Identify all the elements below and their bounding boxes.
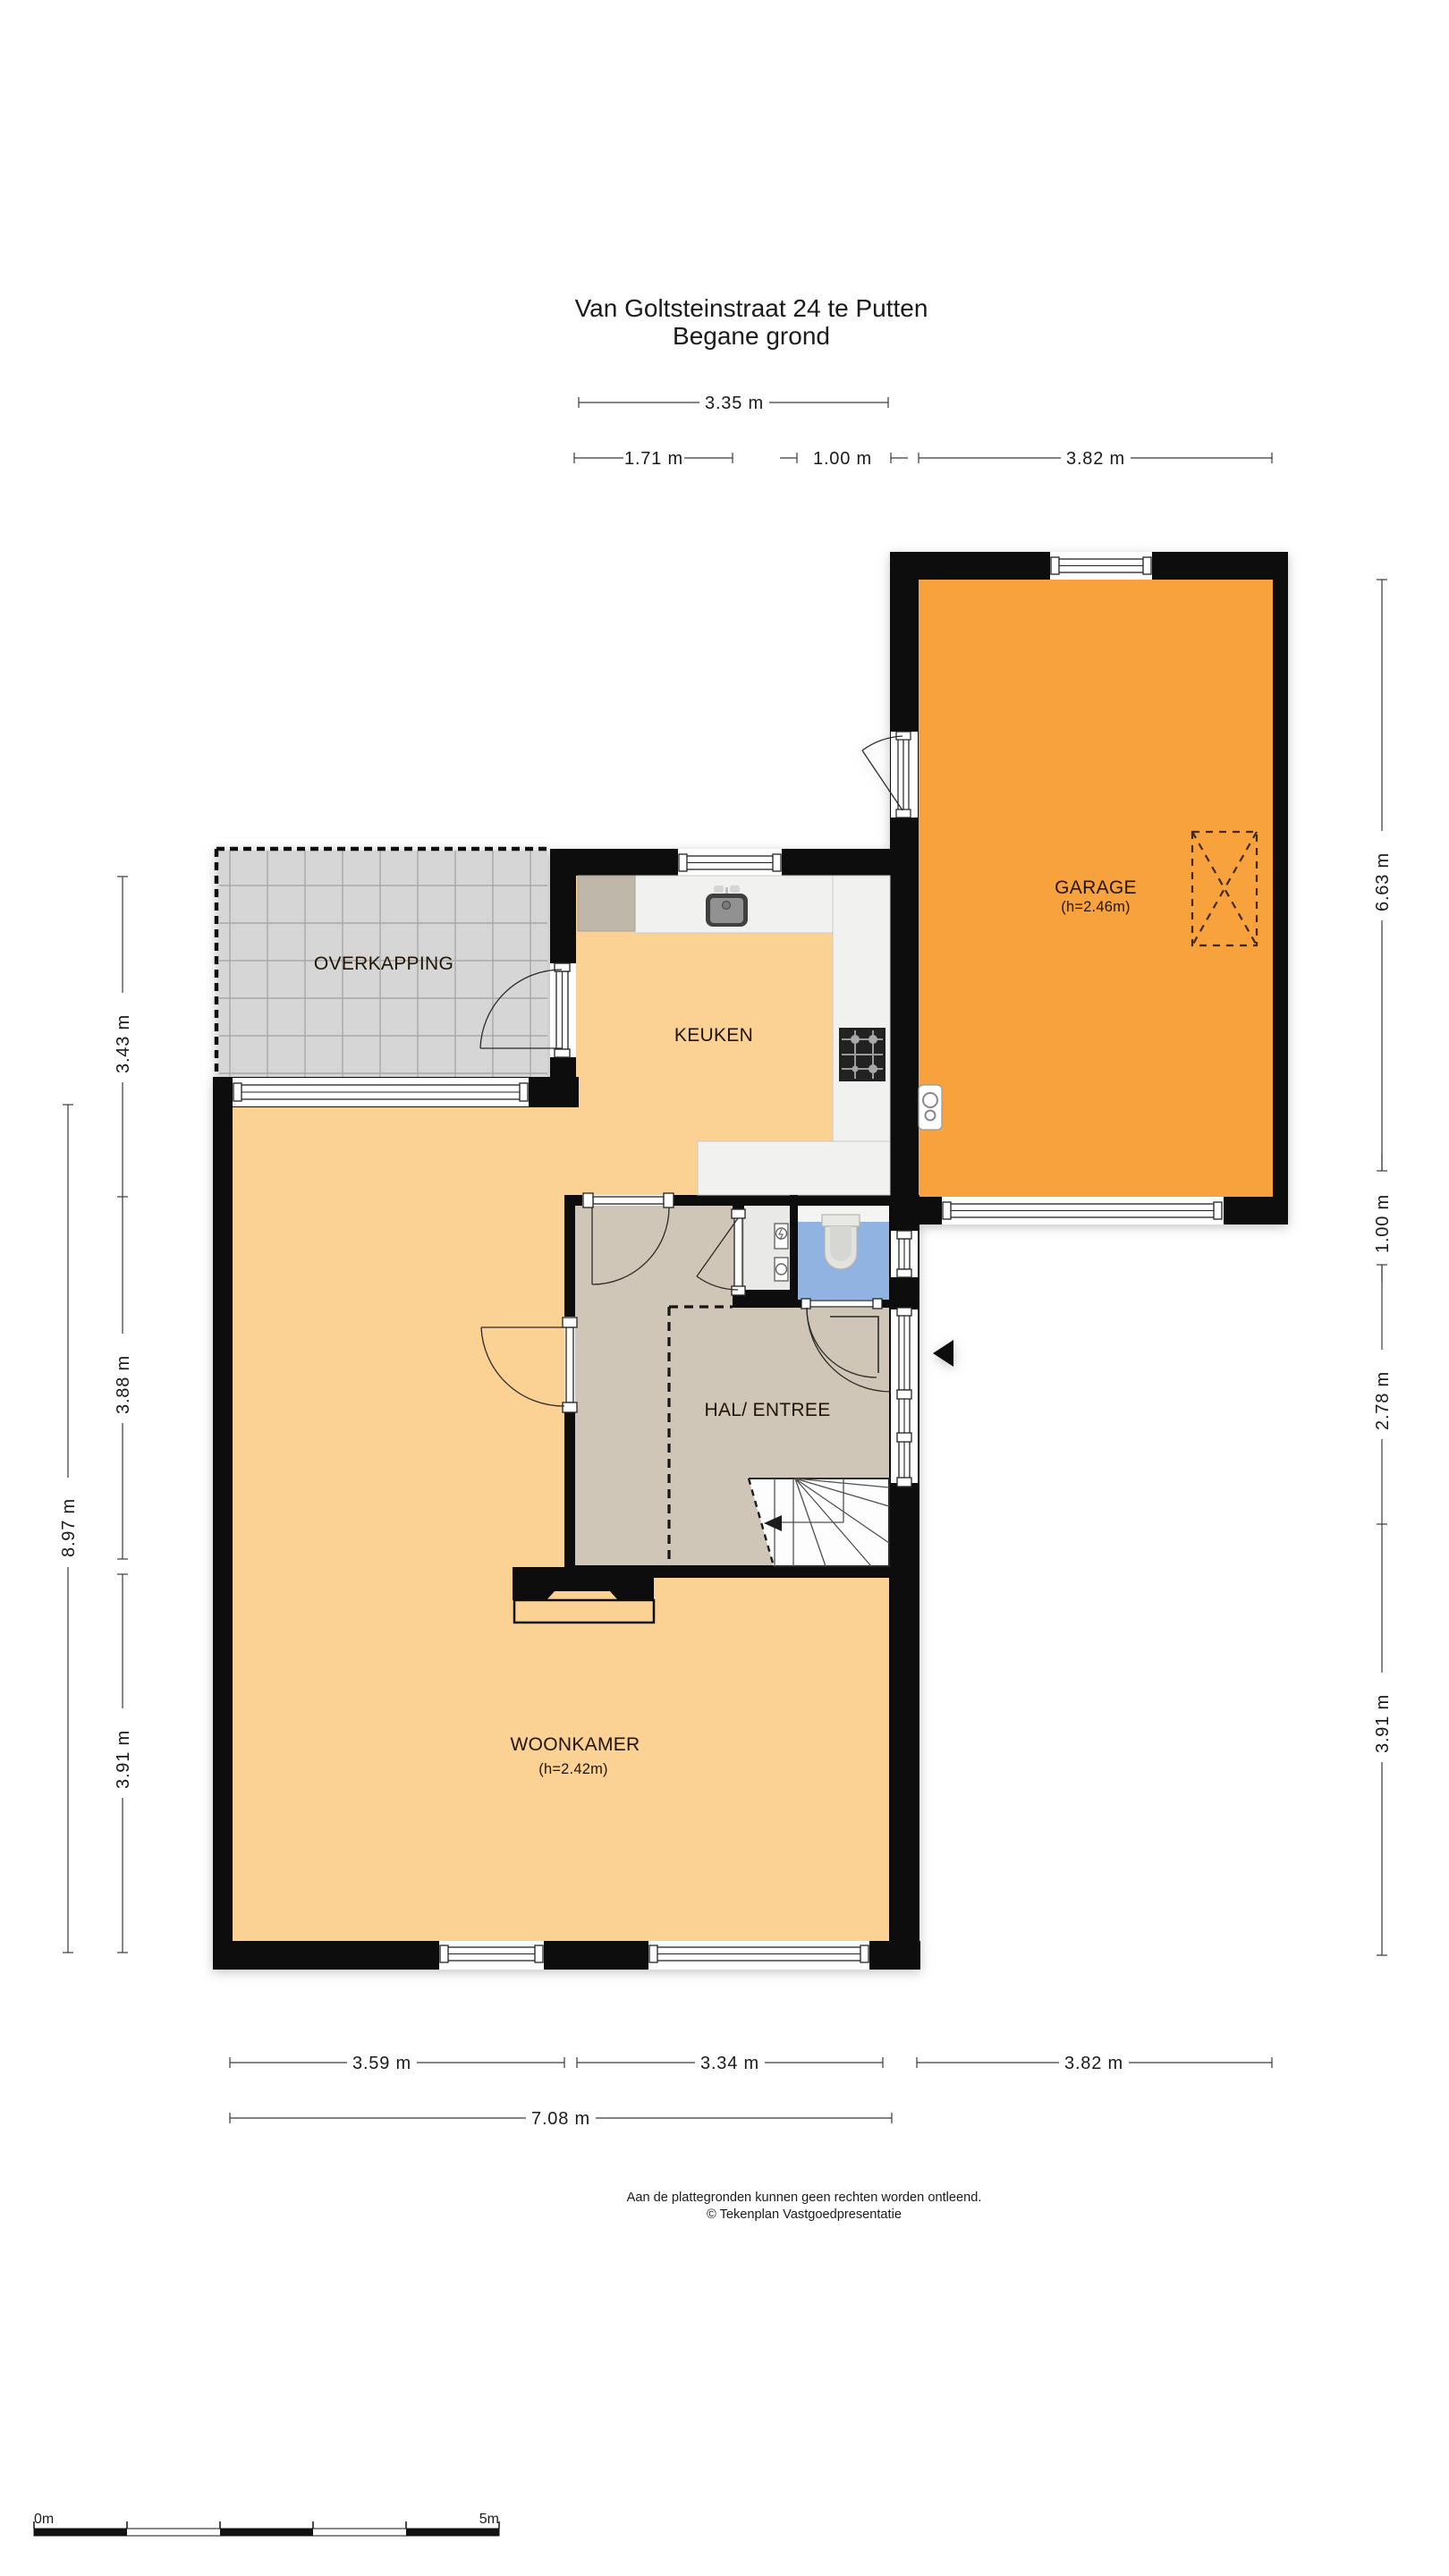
svg-text:3.59 m: 3.59 m	[352, 2054, 411, 2073]
svg-text:Aan de plattegronden kunnen ge: Aan de plattegronden kunnen geen rechten…	[627, 2190, 982, 2205]
svg-text:8.97 m: 8.97 m	[59, 1498, 79, 1557]
svg-text:2.78 m: 2.78 m	[1373, 1371, 1393, 1430]
svg-text:(h=2.46m): (h=2.46m)	[1061, 899, 1130, 915]
svg-text:3.91 m: 3.91 m	[114, 1730, 133, 1789]
svg-text:(h=2.42m): (h=2.42m)	[538, 1761, 607, 1777]
svg-text:6.63 m: 6.63 m	[1373, 852, 1393, 911]
svg-text:© Tekenplan Vastgoedpresentati: © Tekenplan Vastgoedpresentatie	[707, 2207, 902, 2222]
svg-text:OVERKAPPING: OVERKAPPING	[314, 953, 453, 974]
svg-text:3.43 m: 3.43 m	[114, 1014, 133, 1073]
svg-text:1.71 m: 1.71 m	[624, 449, 683, 469]
svg-text:Begane grond: Begane grond	[673, 322, 830, 350]
svg-text:3.82 m: 3.82 m	[1066, 449, 1125, 469]
svg-text:3.91 m: 3.91 m	[1373, 1694, 1393, 1753]
svg-text:KEUKEN: KEUKEN	[674, 1025, 753, 1046]
svg-text:WOONKAMER: WOONKAMER	[510, 1734, 640, 1755]
svg-text:Van Goltsteinstraat 24 te Putt: Van Goltsteinstraat 24 te Putten	[575, 294, 928, 322]
svg-text:3.82 m: 3.82 m	[1064, 2054, 1123, 2073]
svg-text:1.00 m: 1.00 m	[813, 449, 872, 469]
svg-text:HAL/ ENTREE: HAL/ ENTREE	[705, 1400, 831, 1420]
svg-text:3.88 m: 3.88 m	[114, 1355, 133, 1414]
svg-text:GARAGE: GARAGE	[1055, 877, 1137, 898]
svg-text:3.34 m: 3.34 m	[700, 2054, 759, 2073]
svg-text:0m: 0m	[34, 2512, 54, 2527]
svg-text:5m: 5m	[479, 2512, 499, 2527]
svg-text:7.08 m: 7.08 m	[531, 2109, 590, 2129]
svg-text:3.35 m: 3.35 m	[705, 394, 764, 413]
svg-text:1.00 m: 1.00 m	[1373, 1194, 1393, 1253]
